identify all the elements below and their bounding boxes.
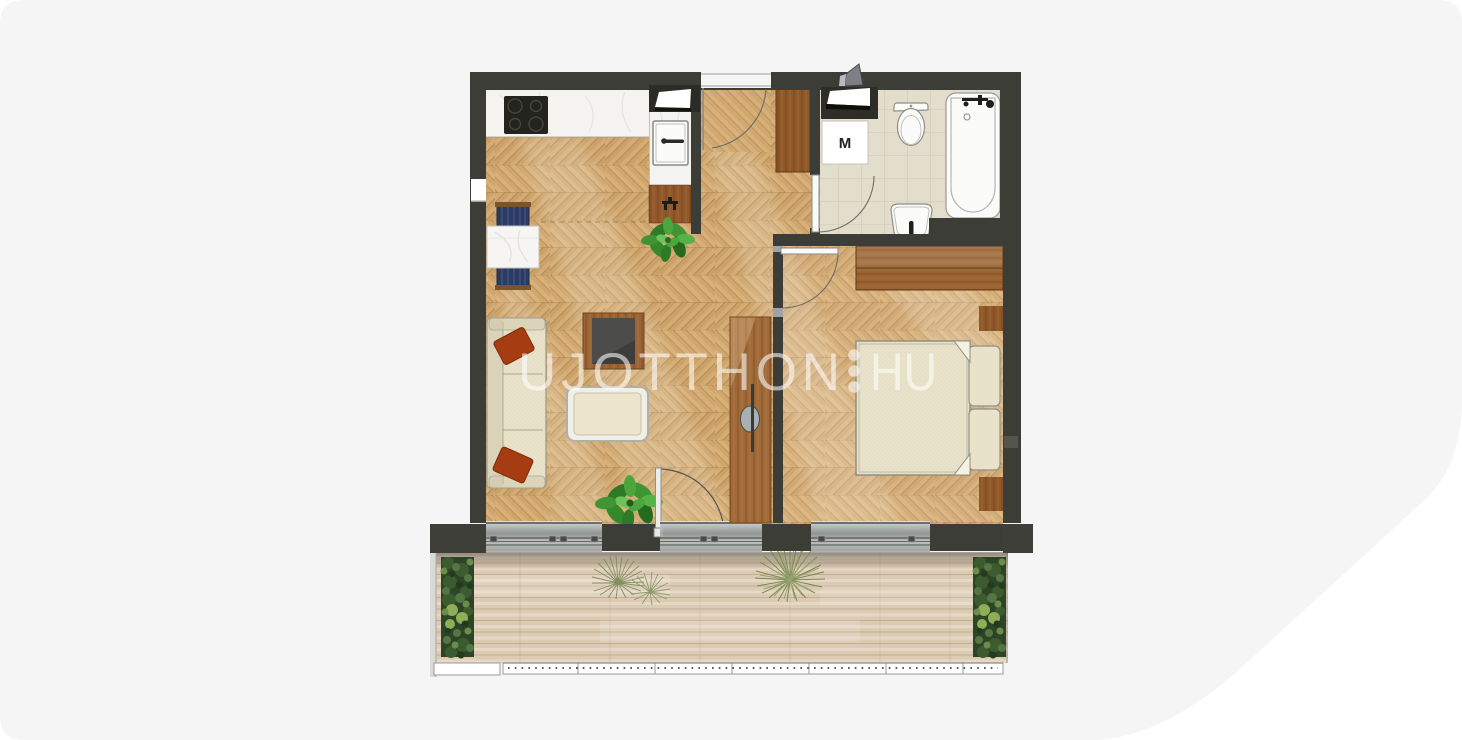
svg-text:M: M	[839, 135, 852, 152]
svg-text:UJOTTHON: UJOTTHON	[518, 343, 840, 402]
svg-text:HU: HU	[870, 343, 937, 402]
